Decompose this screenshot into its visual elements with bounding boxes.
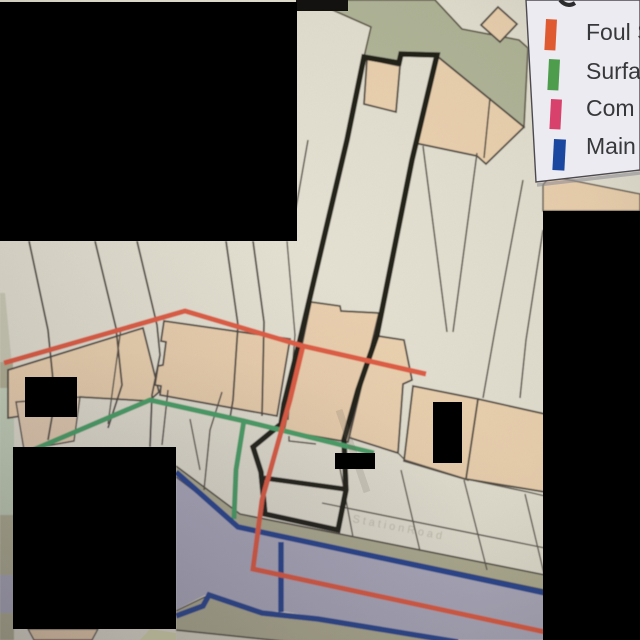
svg-text:Foul S: Foul S [586,19,640,45]
svg-text:Main: Main [586,133,636,159]
svg-text:Com: Com [586,95,635,121]
svg-text:Surfa: Surfa [586,58,640,84]
